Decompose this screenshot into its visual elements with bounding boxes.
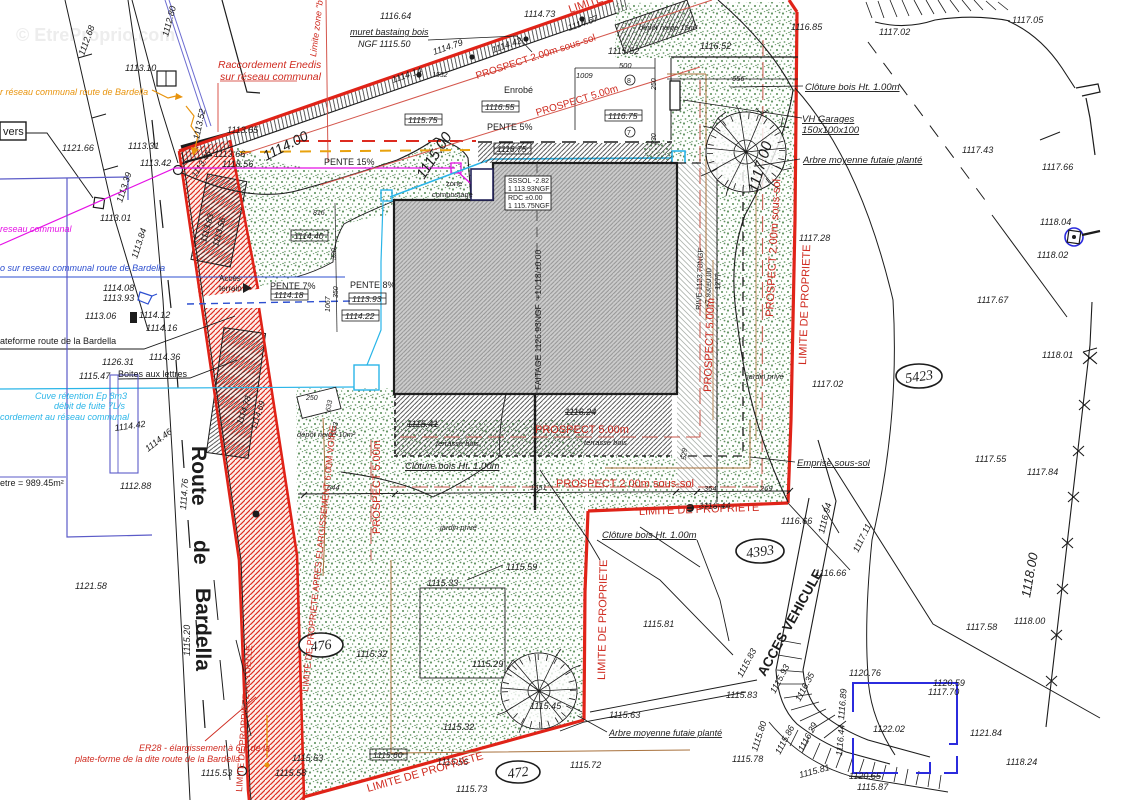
svg-text:zone: zone [446, 179, 462, 188]
svg-text:FAITAGE 1126.93NGF +10.18/±0.: FAITAGE 1126.93NGF +10.18/±0.00 [533, 250, 543, 390]
svg-text:1113.65: 1113.65 [227, 125, 259, 135]
svg-text:PROSPECT 2.00m sous-sol: PROSPECT 2.00m sous-sol [556, 478, 694, 490]
svg-text:330: 330 [651, 133, 658, 145]
svg-text:NGF 1115.50: NGF 1115.50 [358, 39, 411, 49]
svg-text:1116.75: 1116.75 [608, 111, 638, 121]
svg-text:1114.18: 1114.18 [274, 290, 304, 300]
svg-text:1 113.93NGF: 1 113.93NGF [508, 186, 550, 193]
svg-text:1115.20: 1115.20 [182, 625, 192, 656]
svg-text:1113.93: 1113.93 [103, 293, 134, 303]
svg-text:1115.58: 1115.58 [275, 768, 306, 778]
svg-text:1121.58: 1121.58 [75, 581, 107, 591]
svg-text:1117.55: 1117.55 [975, 454, 1007, 464]
svg-text:1117.84: 1117.84 [1027, 467, 1058, 477]
svg-text:o sur reseau communal route de: o sur reseau communal route de Bardella [0, 263, 165, 273]
svg-text:1067: 1067 [325, 295, 332, 312]
svg-text:1115.52: 1115.52 [608, 46, 639, 56]
svg-text:1115.75: 1115.75 [408, 115, 438, 125]
svg-text:1121.84: 1121.84 [970, 728, 1002, 738]
svg-text:1116.66: 1116.66 [781, 516, 812, 526]
svg-text:Route: Route [187, 446, 210, 506]
svg-text:1115.73: 1115.73 [456, 784, 487, 794]
svg-text:Accès: Accès [219, 274, 241, 283]
svg-text:1113.42: 1113.42 [140, 158, 171, 168]
svg-text:1118.24: 1118.24 [1006, 757, 1037, 767]
svg-text:1114.12: 1114.12 [139, 310, 170, 320]
svg-text:1113.06: 1113.06 [85, 311, 116, 321]
svg-text:1115.83: 1115.83 [726, 690, 757, 700]
svg-text:1118.01: 1118.01 [1042, 350, 1073, 360]
svg-text:1118.56: 1118.56 [222, 159, 253, 169]
svg-text:Clôture bois Ht. 1.00m: Clôture bois Ht. 1.00m [405, 461, 500, 472]
svg-text:8: 8 [627, 78, 631, 85]
svg-text:PROSPECT 5.00m: PROSPECT 5.00m [535, 424, 629, 436]
svg-text:1117.43: 1117.43 [962, 145, 993, 155]
svg-text:1116.52: 1116.52 [700, 41, 731, 51]
svg-text:Enrobé: Enrobé [504, 85, 533, 95]
svg-text:RDC ±0.00: RDC ±0.00 [508, 195, 543, 202]
svg-text:terrain: terrain [219, 284, 242, 293]
svg-text:1115.32: 1115.32 [356, 649, 387, 659]
svg-text:1115.32: 1115.32 [443, 722, 474, 732]
svg-text:1126.31: 1126.31 [102, 357, 134, 367]
svg-text:656: 656 [732, 74, 745, 83]
svg-text:1118.02: 1118.02 [1037, 250, 1068, 260]
svg-text:1118.00: 1118.00 [1014, 616, 1045, 626]
svg-text:1114.08: 1114.08 [103, 283, 134, 293]
svg-text:1115.72: 1115.72 [570, 760, 601, 770]
svg-text:1 115.75NGF: 1 115.75NGF [508, 203, 550, 210]
svg-text:dépôt neige 15m²: dépôt neige 15m² [639, 23, 698, 32]
svg-text:269: 269 [759, 484, 773, 493]
svg-text:1117.28: 1117.28 [799, 233, 830, 243]
svg-text:SSSOL -2.82: SSSOL -2.82 [508, 178, 549, 185]
svg-text:Clôture bois Ht. 1.00m: Clôture bois Ht. 1.00m [805, 82, 900, 93]
svg-text:1120.76: 1120.76 [849, 668, 881, 678]
svg-text:1114.16: 1114.16 [146, 323, 177, 333]
svg-text:de: de [189, 540, 212, 565]
svg-text:Bardella: Bardella [191, 588, 214, 671]
svg-text:500: 500 [619, 61, 632, 70]
svg-text:1115.47: 1115.47 [79, 371, 111, 381]
svg-text:reseau communal: reseau communal [0, 224, 73, 234]
svg-text:250: 250 [651, 78, 658, 91]
svg-text:1115.59: 1115.59 [506, 562, 537, 572]
svg-text:1117.70: 1117.70 [928, 687, 959, 697]
svg-text:plate-forme de la dite route d: plate-forme de la dite route de la Barde… [74, 754, 240, 764]
svg-text:1116.55: 1116.55 [485, 102, 515, 112]
svg-text:PROSPECT 5.00m: PROSPECT 5.00m [371, 440, 383, 534]
svg-text:1114.73: 1114.73 [524, 9, 555, 19]
svg-text:1115.87: 1115.87 [857, 782, 889, 792]
svg-text:1113.66: 1113.66 [214, 149, 245, 159]
svg-text:1116.24: 1116.24 [565, 407, 596, 417]
svg-text:1113.93: 1113.93 [352, 294, 382, 304]
svg-text:1120.65: 1120.65 [849, 771, 882, 781]
svg-text:terrasse bois: terrasse bois [584, 438, 627, 447]
svg-text:816: 816 [313, 210, 325, 217]
svg-text:1115.41: 1115.41 [407, 419, 438, 429]
svg-text:472: 472 [507, 765, 530, 783]
svg-text:ateforme route de la Bardella: ateforme route de la Bardella [0, 336, 116, 346]
svg-text:1552: 1552 [432, 72, 448, 79]
svg-text:1116.75: 1116.75 [497, 144, 527, 154]
svg-text:7: 7 [627, 130, 631, 137]
svg-text:1117.66: 1117.66 [1042, 162, 1073, 172]
svg-text:1114.36: 1114.36 [149, 352, 180, 362]
svg-text:jardin privé: jardin privé [746, 372, 784, 381]
svg-text:r réseau communal route de Bar: r réseau communal route de Bardella [0, 87, 148, 97]
svg-text:1115.53: 1115.53 [201, 768, 232, 778]
svg-text:débit de fuite 7L/s: débit de fuite 7L/s [54, 401, 126, 411]
svg-text:Clôture bois Ht. 1.00m: Clôture bois Ht. 1.00m [602, 530, 697, 541]
svg-text:1115.45: 1115.45 [530, 701, 562, 711]
svg-text:1113.01: 1113.01 [100, 213, 131, 223]
svg-text:cordement au réseau communal: cordement au réseau communal [0, 412, 130, 422]
svg-text:1112.88: 1112.88 [120, 481, 151, 491]
svg-text:1115.33: 1115.33 [427, 578, 458, 588]
svg-text:vers: vers [3, 126, 24, 138]
svg-text:1117.02: 1117.02 [879, 27, 910, 37]
svg-text:1115.63: 1115.63 [292, 753, 323, 763]
svg-text:250: 250 [305, 395, 318, 402]
svg-text:320: 320 [331, 248, 338, 260]
svg-text:1551: 1551 [530, 483, 547, 492]
svg-text:ER28 - élargissement à 6m de l: ER28 - élargissement à 6m de la [139, 743, 270, 753]
svg-text:VH Garages: VH Garages [802, 114, 855, 125]
svg-text:1113.31: 1113.31 [128, 141, 159, 151]
svg-text:1114.40: 1114.40 [294, 231, 324, 241]
svg-text:1118.04: 1118.04 [1040, 217, 1071, 227]
svg-text:1115.60: 1115.60 [373, 750, 403, 760]
svg-text:PENTE 8%: PENTE 8% [350, 280, 396, 290]
svg-text:jardin privé: jardin privé [439, 523, 477, 532]
svg-text:1122.02: 1122.02 [873, 724, 905, 734]
svg-text:Emprise sous-sol: Emprise sous-sol [797, 458, 871, 469]
svg-text:1121.66: 1121.66 [62, 143, 94, 153]
svg-text:Arbre moyenne futaie planté: Arbre moyenne futaie planté [802, 155, 922, 166]
svg-text:LIMITE DE PROPRIETE: LIMITE DE PROPRIETE [596, 559, 610, 680]
svg-text:1114.22: 1114.22 [345, 311, 375, 321]
svg-text:terrasse bois: terrasse bois [436, 439, 479, 448]
svg-text:1115.81: 1115.81 [643, 619, 674, 629]
svg-text:Arbre moyenne futaie planté: Arbre moyenne futaie planté [608, 728, 722, 738]
svg-text:compostage: compostage [432, 190, 473, 199]
svg-text:1116.85: 1116.85 [791, 22, 823, 32]
svg-text:PENTE 15%: PENTE 15% [324, 157, 375, 167]
svg-text:1113.10: 1113.10 [125, 63, 156, 73]
svg-text:1115.63: 1115.63 [609, 710, 640, 720]
svg-text:PENTE 5%: PENTE 5% [487, 122, 533, 132]
svg-text:Raccordement Enedis: Raccordement Enedis [218, 59, 322, 71]
svg-text:1117.67: 1117.67 [977, 295, 1009, 305]
svg-text:1009: 1009 [576, 71, 594, 80]
svg-text:529: 529 [681, 448, 689, 460]
svg-text:muret bastaing bois: muret bastaing bois [350, 27, 429, 37]
svg-text:150x100x100: 150x100x100 [802, 125, 860, 136]
svg-text:1116.64: 1116.64 [380, 11, 411, 21]
svg-text:etre = 989.45m²: etre = 989.45m² [0, 478, 64, 488]
svg-text:Cuve rétention Ep 8m3: Cuve rétention Ep 8m3 [35, 391, 127, 401]
svg-text:1117.58: 1117.58 [966, 622, 997, 632]
svg-text:1117.02: 1117.02 [812, 379, 843, 389]
svg-text:1115.29: 1115.29 [472, 659, 503, 669]
svg-text:354: 354 [704, 484, 717, 493]
svg-text:Boites aux lettres: Boites aux lettres [118, 369, 188, 379]
svg-text:1115.78: 1115.78 [732, 754, 763, 764]
svg-text:1277: 1277 [713, 273, 723, 290]
svg-text:1117.05: 1117.05 [1012, 15, 1044, 25]
